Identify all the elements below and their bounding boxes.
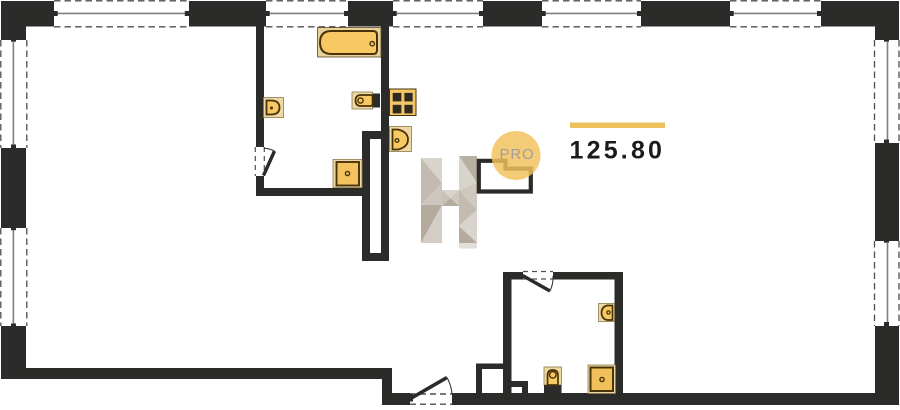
svg-text:125.80: 125.80 <box>570 137 666 165</box>
svg-text:PRO: PRO <box>500 146 535 163</box>
